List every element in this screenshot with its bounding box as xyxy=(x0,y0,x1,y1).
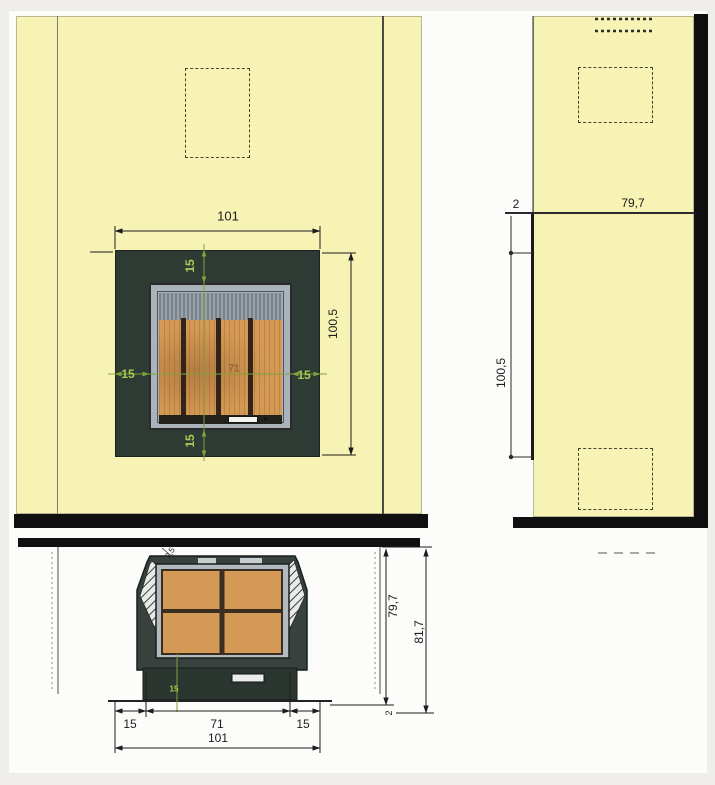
front-dim-100-5 xyxy=(322,253,356,455)
plan-clearance-left-label: 15 xyxy=(123,717,136,731)
side-height-label: 100,5 xyxy=(494,358,508,388)
side-wall-gap-label: 2 xyxy=(513,197,520,211)
front-clearance-bottom-label: 15 xyxy=(183,434,197,447)
installation-drawing: 101 100,5 15 15 15 15 71 2 79,7 100,5 2,… xyxy=(0,0,715,785)
plan-fireplace-body xyxy=(108,548,332,712)
plan-depth-inner-label: 79,7 xyxy=(386,594,400,617)
side-depth-label: 79,7 xyxy=(621,196,644,210)
front-dim-width-label: 101 xyxy=(217,209,239,224)
front-clearance-right-label: 15 xyxy=(297,368,310,382)
front-dim-101 xyxy=(90,226,320,252)
plan-firebox-width-label: 71 xyxy=(210,717,223,731)
plan-width-total-label: 101 xyxy=(208,731,228,745)
front-clearance-top-label: 15 xyxy=(183,259,197,272)
front-firebox-width-label: 71 xyxy=(228,364,239,375)
side-linework xyxy=(505,16,694,553)
plan-plinth xyxy=(143,668,297,700)
front-dim-height-label: 100,5 xyxy=(326,309,340,339)
plan-green-note-label: 15 xyxy=(170,685,179,694)
plan-handle xyxy=(232,674,264,682)
plan-depth-total-label: 81,7 xyxy=(412,620,426,643)
dimension-linework xyxy=(0,0,715,785)
plan-back-wall-bar xyxy=(18,538,420,547)
plan-front-gap-label: 2 xyxy=(384,710,394,715)
front-clearance-left-label: 15 xyxy=(121,367,134,381)
plan-clearance-right-label: 15 xyxy=(296,717,309,731)
front-green-dims xyxy=(108,244,327,461)
